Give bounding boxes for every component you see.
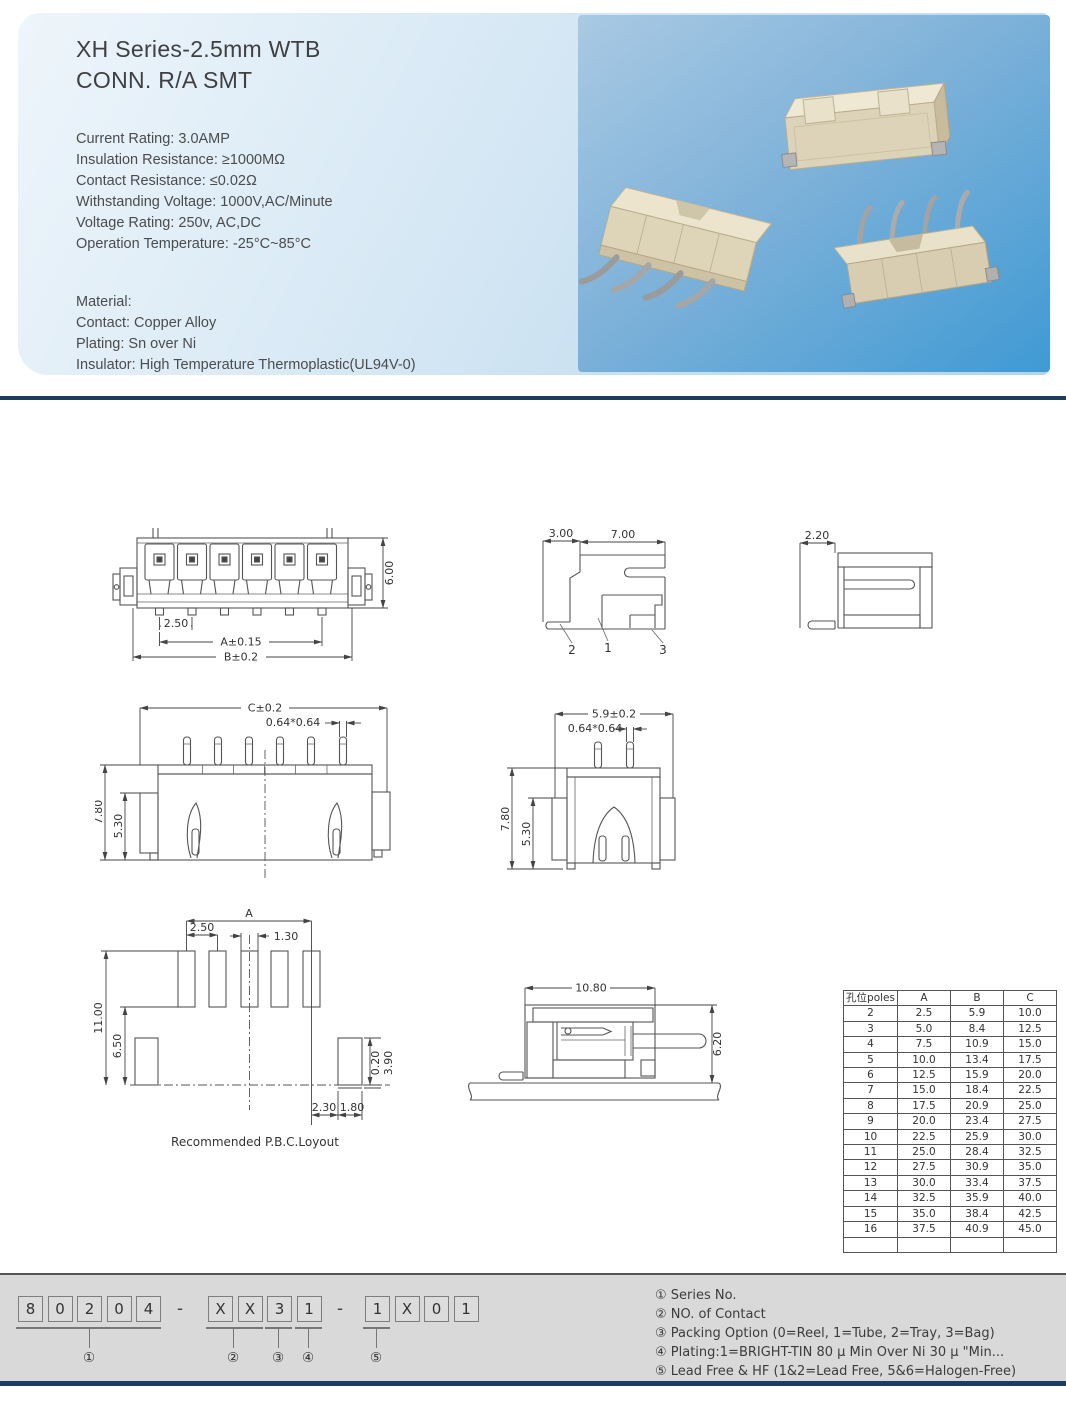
pcb-layout-caption: Recommended P.B.C.Loyout [171, 1135, 339, 1149]
marker-3: ③ [269, 1350, 287, 1366]
cell: 16 [844, 1222, 898, 1237]
dim-label: 2.50 [190, 921, 215, 934]
table-header: B [951, 991, 1004, 1006]
cell: 10 [844, 1129, 898, 1144]
material-line: Material: [76, 292, 416, 313]
product-photo [578, 15, 1050, 372]
footer-bar [0, 1381, 1066, 1386]
cell: 35.9 [951, 1191, 1004, 1206]
section-divider [0, 396, 1066, 400]
cell: 13 [844, 1175, 898, 1190]
cell: 15.0 [1004, 1037, 1057, 1052]
cell: 45.0 [1004, 1222, 1057, 1237]
back-view-drawing: C±0.2 0.64*0.64 7.80 5.30 [95, 695, 425, 890]
dim-label: A±0.15 [220, 636, 261, 649]
dim-label: 11.00 [92, 1002, 105, 1034]
table-row: 1432.535.940.0 [844, 1191, 1057, 1206]
cell: 8 [844, 1098, 898, 1113]
mated-section-drawing: 10.80 6.20 [465, 960, 745, 1140]
part-number-box: X [238, 1296, 263, 1322]
cell [844, 1237, 898, 1252]
dim-label: 3.90 [382, 1051, 395, 1076]
part-number-box: 1 [365, 1296, 390, 1322]
material-list: Material: Contact: Copper Alloy Plating:… [76, 292, 416, 376]
dim-label: 1.80 [340, 1101, 365, 1114]
part-number-box: 0 [48, 1296, 73, 1322]
marker-leader [308, 1328, 309, 1348]
material-line: Contact: Copper Alloy [76, 313, 416, 334]
dim-label: 5.30 [112, 814, 125, 839]
table-row: 612.515.920.0 [844, 1068, 1057, 1083]
cell: 37.5 [898, 1222, 951, 1237]
datasheet-page: XH Series-2.5mm WTB CONN. R/A SMT Curren… [0, 0, 1066, 1401]
cell: 17.5 [898, 1098, 951, 1113]
side-view-drawing: 3.00 7.00 2 1 3 [520, 510, 720, 670]
marker-4: ④ [299, 1350, 317, 1366]
dim-label: 2.50 [164, 617, 189, 630]
cell: 37.5 [1004, 1175, 1057, 1190]
cell: 6 [844, 1068, 898, 1083]
legend-item: ③ Packing Option (0=Reel, 1=Tube, 2=Tray… [655, 1324, 1016, 1343]
dim-label: 5.30 [520, 822, 533, 847]
dim-label: 2.30 [312, 1101, 337, 1114]
cell: 32.5 [1004, 1145, 1057, 1160]
spec-line: Voltage Rating: 250v, AC,DC [76, 213, 333, 234]
table-header: A [898, 991, 951, 1006]
page-title: XH Series-2.5mm WTB CONN. R/A SMT [76, 34, 321, 96]
cell: 9 [844, 1114, 898, 1129]
cell: 25.9 [951, 1129, 1004, 1144]
cell: 5.9 [951, 1006, 1004, 1021]
cell: 23.4 [951, 1114, 1004, 1129]
group-underline [206, 1327, 263, 1329]
cell: 13.4 [951, 1052, 1004, 1067]
table-row: 1125.028.432.5 [844, 1145, 1057, 1160]
legend: ① Series No. ② NO. of Contact ③ Packing … [655, 1286, 1016, 1381]
part-number-box: 0 [424, 1296, 449, 1322]
cell: 4 [844, 1037, 898, 1052]
cell: 14 [844, 1191, 898, 1206]
table-row: 715.018.422.5 [844, 1083, 1057, 1098]
part-number-box: X [395, 1296, 420, 1322]
section-view-drawing: 2.20 [780, 510, 980, 650]
callout-label: 3 [659, 643, 667, 657]
table-row: 22.55.910.0 [844, 1006, 1057, 1021]
legend-item: ② NO. of Contact [655, 1305, 1016, 1324]
dim-label: 0.20 [369, 1051, 382, 1076]
spec-line: Withstanding Voltage: 1000V,AC/Minute [76, 192, 333, 213]
cell: 20.9 [951, 1098, 1004, 1113]
end-view-drawing: 5.9±0.2 0.64*0.64 7.80 5.30 [495, 695, 710, 895]
cell: 8.4 [951, 1021, 1004, 1036]
poles-dimension-table: 孔位poles A B C 22.55.910.0 35.08.412.5 47… [843, 990, 1057, 1253]
material-line: Plating: Sn over Ni [76, 334, 416, 355]
front-view-drawing: 2.50 A±0.15 B±0.2 6.00 [100, 510, 400, 670]
cell: 30.9 [951, 1160, 1004, 1175]
dim-label: C±0.2 [248, 702, 282, 715]
table-row: 510.013.417.5 [844, 1052, 1057, 1067]
legend-item: ① Series No. [655, 1286, 1016, 1305]
cell: 42.5 [1004, 1206, 1057, 1221]
cell: 40.0 [1004, 1191, 1057, 1206]
cell: 27.5 [898, 1160, 951, 1175]
cell: 5.0 [898, 1021, 951, 1036]
callout-label: 2 [568, 643, 576, 657]
legend-item: ⑤ Lead Free & HF (1&2=Lead Free, 5&6=Hal… [655, 1362, 1016, 1381]
dim-label: 2.20 [805, 529, 830, 542]
table-header: 孔位poles [844, 991, 898, 1006]
part-number-box: 3 [267, 1296, 292, 1322]
cell: 27.5 [1004, 1114, 1057, 1129]
legend-item: ④ Plating:1=BRIGHT-TIN 80 μ Min Over Ni … [655, 1343, 1016, 1362]
table-row: 1637.540.945.0 [844, 1222, 1057, 1237]
table-header-row: 孔位poles A B C [844, 991, 1057, 1006]
cell: 32.5 [898, 1191, 951, 1206]
cell: 20.0 [898, 1114, 951, 1129]
callout-label: 1 [604, 641, 612, 655]
cell: 20.0 [1004, 1068, 1057, 1083]
spec-line: Insulation Resistance: ≥1000MΩ [76, 150, 333, 171]
table-row: 1535.038.442.5 [844, 1206, 1057, 1221]
table-row: 1022.525.930.0 [844, 1129, 1057, 1144]
title-line-2: CONN. R/A SMT [76, 65, 321, 96]
part-number-box: 0 [107, 1296, 132, 1322]
material-line: Insulator: High Temperature Thermoplasti… [76, 355, 416, 376]
cell: 15 [844, 1206, 898, 1221]
part-number-box: 1 [454, 1296, 479, 1322]
cell: 7.5 [898, 1037, 951, 1052]
dim-label: 6.50 [111, 1034, 124, 1059]
part-number-box: 2 [77, 1296, 102, 1322]
marker-leader [233, 1328, 234, 1348]
cell: 17.5 [1004, 1052, 1057, 1067]
spec-list: Current Rating: 3.0AMP Insulation Resist… [76, 129, 333, 255]
marker-leader [278, 1328, 279, 1348]
dim-label: 7.80 [499, 807, 512, 832]
cell: 10.9 [951, 1037, 1004, 1052]
cell: 2 [844, 1006, 898, 1021]
spec-line: Current Rating: 3.0AMP [76, 129, 333, 150]
cell: 30.0 [1004, 1129, 1057, 1144]
cell: 5 [844, 1052, 898, 1067]
table-row: 47.510.915.0 [844, 1037, 1057, 1052]
cell: 35.0 [1004, 1160, 1057, 1175]
cell: 25.0 [898, 1145, 951, 1160]
table-row [844, 1237, 1057, 1252]
cell: 30.0 [898, 1175, 951, 1190]
cell: 22.5 [898, 1129, 951, 1144]
spec-line: Contact Resistance: ≤0.02Ω [76, 171, 333, 192]
part-number-box: X [208, 1296, 233, 1322]
dim-label: 5.9±0.2 [592, 708, 636, 721]
cell: 35.0 [898, 1206, 951, 1221]
marker-leader [89, 1328, 90, 1348]
dim-label: 0.64*0.64 [568, 722, 622, 735]
cell: 7 [844, 1083, 898, 1098]
dim-label: 7.80 [95, 800, 105, 825]
cell: 18.4 [951, 1083, 1004, 1098]
cell: 12.5 [1004, 1021, 1057, 1036]
part-number-dash: - [337, 1298, 343, 1319]
table-header: C [1004, 991, 1057, 1006]
dim-label: A [245, 907, 253, 920]
cell: 25.0 [1004, 1098, 1057, 1113]
cell: 10.0 [898, 1052, 951, 1067]
marker-1: ① [80, 1350, 98, 1366]
marker-2: ② [224, 1350, 242, 1366]
dim-label: 6.20 [711, 1032, 724, 1057]
table-row: 1227.530.935.0 [844, 1160, 1057, 1175]
dim-label: 6.00 [383, 561, 396, 586]
title-line-1: XH Series-2.5mm WTB [76, 34, 321, 65]
part-number-dash: - [177, 1298, 183, 1319]
cell: 40.9 [951, 1222, 1004, 1237]
part-number-box: 8 [18, 1296, 43, 1322]
dim-label: 10.80 [575, 982, 607, 995]
cell: 12 [844, 1160, 898, 1175]
dim-label: B±0.2 [224, 651, 258, 664]
cell: 2.5 [898, 1006, 951, 1021]
pcb-layout-drawing: A 2.50 1.30 11.00 6.50 0.20 3.90 2.30 1.… [85, 905, 435, 1155]
cell: 38.4 [951, 1206, 1004, 1221]
cell [1004, 1237, 1057, 1252]
cell: 12.5 [898, 1068, 951, 1083]
cell [951, 1237, 1004, 1252]
cell: 11 [844, 1145, 898, 1160]
table-row: 817.520.925.0 [844, 1098, 1057, 1113]
cell: 15.0 [898, 1083, 951, 1098]
dim-label: 3.00 [549, 527, 574, 540]
part-number-box: 4 [136, 1296, 161, 1322]
cell: 22.5 [1004, 1083, 1057, 1098]
table-row: 35.08.412.5 [844, 1021, 1057, 1036]
dim-label: 1.30 [274, 930, 299, 943]
table-row: 920.023.427.5 [844, 1114, 1057, 1129]
cell: 33.4 [951, 1175, 1004, 1190]
part-number-box: 1 [297, 1296, 322, 1322]
marker-5: ⑤ [367, 1350, 385, 1366]
dim-label: 0.64*0.64 [266, 716, 320, 729]
spec-line: Operation Temperature: -25°C~85°C [76, 234, 333, 255]
dim-label: 7.00 [611, 528, 636, 541]
cell: 3 [844, 1021, 898, 1036]
table-row: 1330.033.437.5 [844, 1175, 1057, 1190]
cell [898, 1237, 951, 1252]
cell: 15.9 [951, 1068, 1004, 1083]
marker-leader [376, 1328, 377, 1348]
cell: 28.4 [951, 1145, 1004, 1160]
cell: 10.0 [1004, 1006, 1057, 1021]
